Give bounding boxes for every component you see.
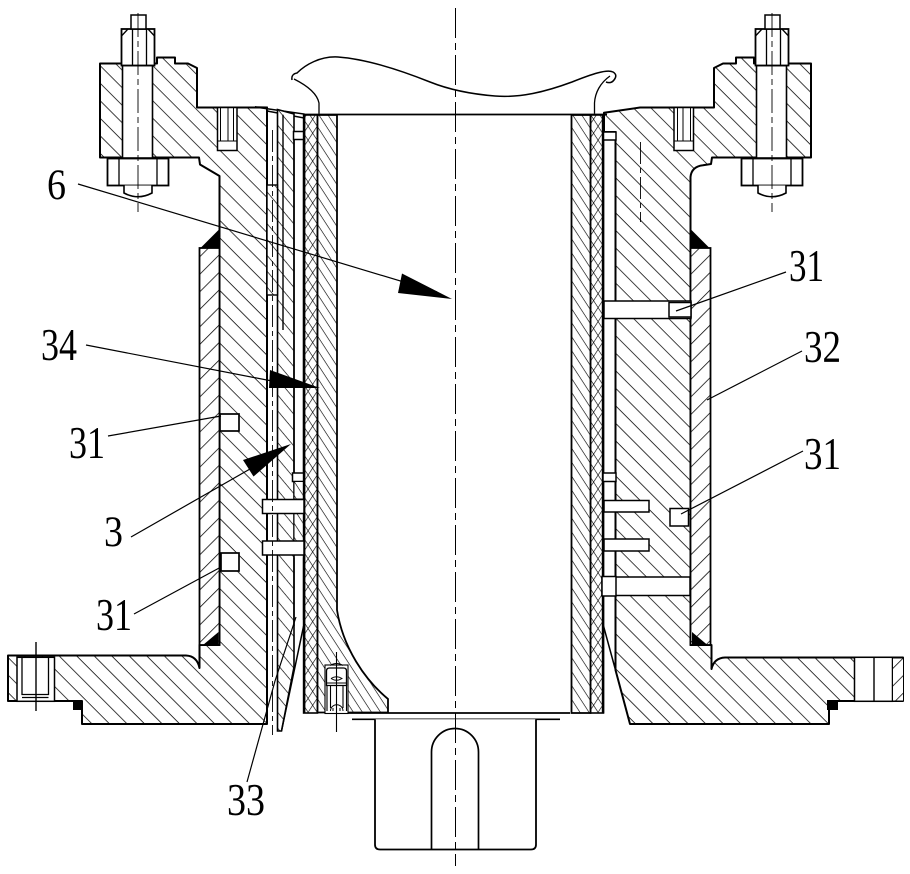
svg-text:31: 31 xyxy=(804,429,841,479)
svg-text:33: 33 xyxy=(227,775,265,825)
svg-text:32: 32 xyxy=(804,322,841,372)
svg-text:3: 3 xyxy=(104,509,123,556)
svg-text:31: 31 xyxy=(789,241,824,291)
svg-text:34: 34 xyxy=(41,320,77,370)
svg-text:6: 6 xyxy=(47,162,66,209)
svg-text:31: 31 xyxy=(96,590,132,640)
svg-text:31: 31 xyxy=(69,418,105,468)
